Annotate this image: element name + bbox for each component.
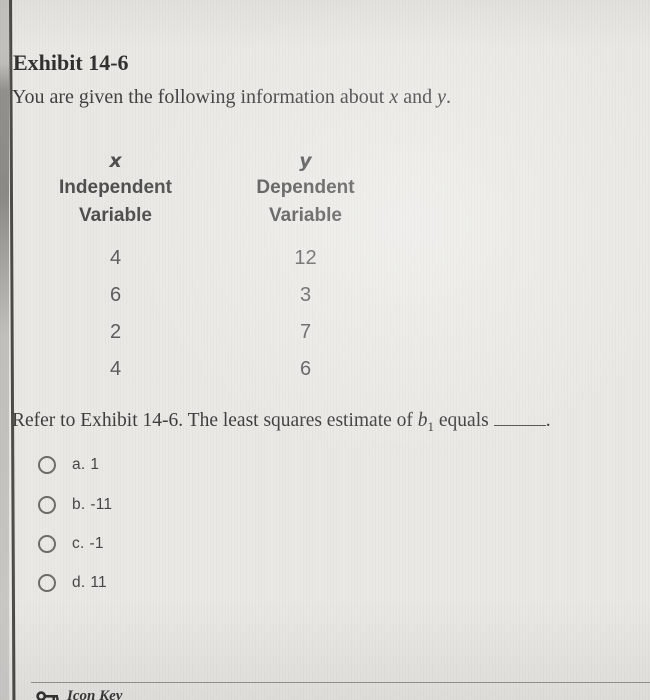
option-c-label: c.-1 bbox=[72, 534, 104, 554]
option-b[interactable]: b.-11 bbox=[38, 495, 112, 515]
radio-button-c[interactable] bbox=[38, 535, 56, 553]
column-header-y: y Dependent Variable bbox=[218, 148, 393, 230]
option-value: 1 bbox=[90, 456, 99, 473]
option-b-label: b.-11 bbox=[72, 495, 112, 515]
question-panel: Exhibit 14-6 You are given the following… bbox=[0, 0, 650, 700]
column-symbol-x: x bbox=[13, 148, 218, 174]
column-label: Dependent bbox=[218, 174, 393, 202]
radio-button-a[interactable] bbox=[38, 456, 56, 474]
table-cell: 12 bbox=[218, 240, 393, 277]
column-label: Variable bbox=[13, 202, 218, 230]
radio-button-d[interactable] bbox=[38, 574, 56, 592]
table-values-x: 4 6 2 4 bbox=[13, 240, 218, 388]
option-value: 11 bbox=[90, 574, 107, 591]
option-c[interactable]: c.-1 bbox=[38, 534, 104, 554]
option-letter: d. bbox=[72, 574, 85, 591]
intro-text: . bbox=[446, 86, 451, 108]
table-cell: 6 bbox=[218, 351, 393, 388]
option-d[interactable]: d.11 bbox=[38, 573, 107, 593]
table-cell: 4 bbox=[13, 240, 218, 277]
radio-button-b[interactable] bbox=[38, 496, 56, 514]
table-cell: 3 bbox=[218, 277, 393, 314]
option-d-label: d.11 bbox=[72, 573, 107, 593]
icon-key-link[interactable]: Icon Key bbox=[36, 687, 122, 700]
intro-var-x: x bbox=[389, 86, 398, 108]
question-text: Refer to Exhibit 14-6. The least squares… bbox=[12, 408, 648, 434]
table-cell: 2 bbox=[13, 314, 218, 351]
option-value: -1 bbox=[89, 535, 103, 552]
column-label: Variable bbox=[218, 202, 393, 230]
icon-key-label: Icon Key bbox=[67, 687, 122, 700]
question-middle: equals bbox=[434, 410, 489, 431]
exhibit-title: Exhibit 14-6 bbox=[13, 50, 129, 76]
quiz-page: Exhibit 14-6 You are given the following… bbox=[0, 0, 650, 700]
column-symbol-y: y bbox=[218, 148, 393, 174]
option-letter: c. bbox=[72, 535, 84, 552]
answer-blank bbox=[494, 413, 546, 426]
intro-var-y: y bbox=[437, 86, 446, 108]
footer-divider bbox=[31, 682, 650, 683]
option-value: -11 bbox=[90, 496, 112, 513]
intro-text: You are given the following information … bbox=[12, 86, 389, 108]
table-values-y: 12 3 7 6 bbox=[218, 240, 393, 388]
question-var-b: b bbox=[418, 410, 428, 431]
table-cell: 6 bbox=[13, 277, 218, 314]
option-letter: b. bbox=[72, 496, 85, 513]
intro-text: and bbox=[398, 86, 437, 108]
table-cell: 4 bbox=[13, 351, 218, 388]
option-a[interactable]: a.1 bbox=[38, 455, 99, 475]
table-cell: 7 bbox=[218, 314, 393, 351]
option-letter: a. bbox=[72, 456, 85, 473]
question-prefix: Refer to Exhibit 14-6. The least squares… bbox=[12, 410, 418, 431]
option-a-label: a.1 bbox=[72, 455, 99, 475]
column-header-x: x Independent Variable bbox=[13, 148, 218, 230]
key-icon bbox=[36, 690, 60, 700]
exhibit-intro: You are given the following information … bbox=[12, 84, 451, 110]
question-period: . bbox=[546, 410, 551, 431]
column-label: Independent bbox=[13, 174, 218, 202]
